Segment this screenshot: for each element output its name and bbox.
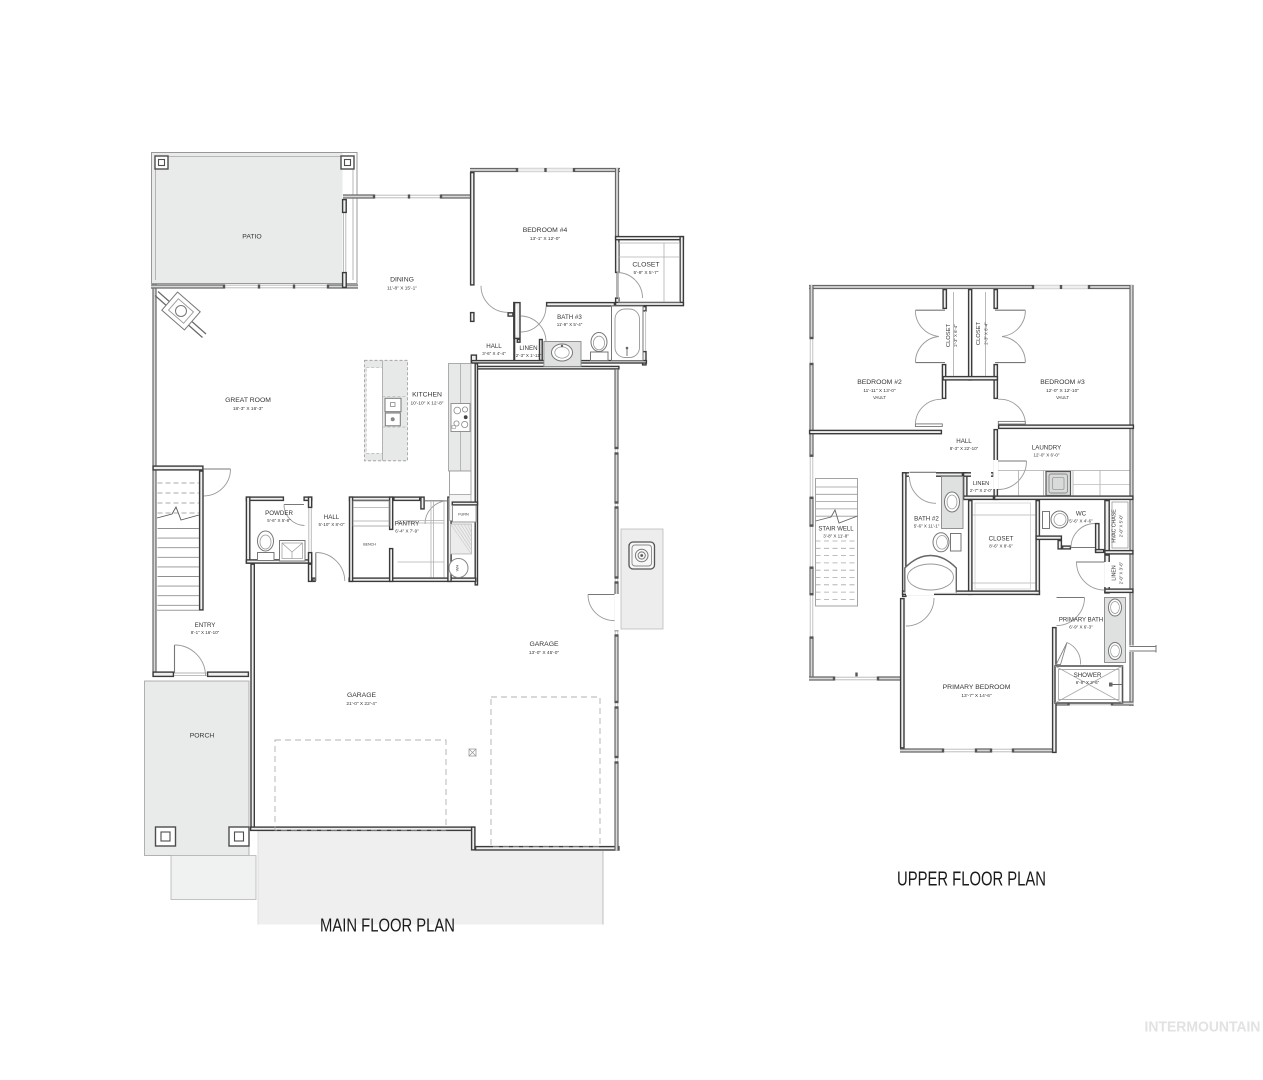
svg-text:13'-7" X 14'-6": 13'-7" X 14'-6"	[961, 693, 992, 699]
svg-text:HALL: HALL	[956, 438, 972, 445]
svg-text:LINEN: LINEN	[519, 345, 537, 352]
svg-text:BEDROOM #3: BEDROOM #3	[1040, 379, 1085, 386]
svg-text:SHOWER: SHOWER	[1074, 672, 1102, 679]
svg-text:5'-6" X 5'-8": 5'-6" X 5'-8"	[267, 518, 291, 523]
svg-text:CLOSET: CLOSET	[976, 321, 982, 345]
svg-text:CLOSET: CLOSET	[946, 323, 952, 347]
svg-text:PANTRY: PANTRY	[395, 521, 420, 528]
svg-text:5'-6" X 11'-1": 5'-6" X 11'-1"	[914, 524, 940, 529]
svg-text:12'-0" X 6'-0": 12'-0" X 6'-0"	[1034, 453, 1060, 458]
svg-text:13'-0" X 45'-0": 13'-0" X 45'-0"	[529, 650, 560, 656]
svg-text:21'-0" X 22'-4": 21'-0" X 22'-4"	[346, 701, 377, 707]
svg-text:FURN: FURN	[458, 513, 469, 517]
svg-text:HALL: HALL	[324, 514, 340, 521]
svg-text:BATH #2: BATH #2	[914, 516, 939, 523]
svg-text:5'-10" X 8'-0": 5'-10" X 8'-0"	[319, 522, 345, 527]
svg-text:11'-8" X 15'-1": 11'-8" X 15'-1"	[387, 286, 417, 292]
svg-text:INTERMOUNTAIN: INTERMOUNTAIN	[1145, 1019, 1261, 1036]
svg-text:CLOSET: CLOSET	[632, 262, 659, 269]
svg-text:BENCH: BENCH	[363, 543, 376, 547]
svg-text:DINING: DINING	[390, 277, 414, 284]
svg-text:WH: WH	[455, 565, 460, 572]
svg-text:CLOSET: CLOSET	[989, 536, 1014, 543]
svg-text:PRIMARY BEDROOM: PRIMARY BEDROOM	[943, 684, 1011, 691]
svg-text:6'-8" X 3'-6": 6'-8" X 3'-6"	[1076, 680, 1100, 685]
svg-text:2'-0" X 3'-6": 2'-0" X 3'-6"	[1119, 561, 1124, 584]
svg-text:BATH #3: BATH #3	[557, 314, 582, 321]
svg-text:KITCHEN: KITCHEN	[412, 392, 442, 399]
svg-text:8'-6" X 8'-6": 8'-6" X 8'-6"	[989, 544, 1013, 549]
svg-text:LINEN: LINEN	[973, 481, 989, 487]
svg-text:2'-3" X 6'-4": 2'-3" X 6'-4"	[984, 322, 989, 345]
svg-text:VAULT: VAULT	[873, 395, 886, 400]
svg-text:PRIMARY BATH: PRIMARY BATH	[1059, 618, 1103, 624]
svg-text:3'-6" X 4'-4": 3'-6" X 4'-4"	[482, 351, 506, 356]
svg-text:STAIR WELL: STAIR WELL	[818, 527, 854, 533]
svg-text:6'-9" X 6'-3": 6'-9" X 6'-3"	[1069, 625, 1093, 630]
svg-text:UPPER FLOOR PLAN: UPPER FLOOR PLAN	[897, 869, 1046, 891]
svg-text:BEDROOM #2: BEDROOM #2	[857, 379, 902, 386]
svg-text:LAUNDRY: LAUNDRY	[1032, 445, 1061, 452]
svg-text:2'-0" X 5'-0": 2'-0" X 5'-0"	[1119, 514, 1124, 537]
svg-text:10'-10" X 12'-8": 10'-10" X 12'-8"	[411, 401, 444, 407]
svg-text:8'-3" X 22'-10": 8'-3" X 22'-10"	[950, 446, 979, 451]
svg-text:PATIO: PATIO	[242, 234, 261, 241]
svg-text:VAULT: VAULT	[1056, 395, 1069, 400]
svg-text:WC: WC	[1076, 511, 1087, 518]
svg-text:HALL: HALL	[486, 343, 502, 350]
svg-text:GREAT ROOM: GREAT ROOM	[225, 397, 271, 404]
svg-text:BEDROOM #4: BEDROOM #4	[523, 227, 568, 234]
svg-text:11'-11" X 13'-0": 11'-11" X 13'-0"	[863, 388, 896, 394]
svg-text:POWDER: POWDER	[265, 510, 293, 517]
svg-text:HVAC CHASE: HVAC CHASE	[1112, 509, 1118, 543]
svg-text:13'-1" X 12'-0": 13'-1" X 12'-0"	[530, 236, 561, 242]
svg-text:2'-3" X 1'-11": 2'-3" X 1'-11"	[516, 353, 542, 358]
svg-text:MAIN FLOOR PLAN: MAIN FLOOR PLAN	[320, 916, 455, 936]
svg-text:3'-8" X 11'-8": 3'-8" X 11'-8"	[823, 534, 849, 539]
svg-text:18'-3" X 16'-3": 18'-3" X 16'-3"	[233, 406, 264, 412]
svg-text:6'-4" X 7'-9": 6'-4" X 7'-9"	[395, 529, 419, 534]
svg-text:11'-9" X 5'-4": 11'-9" X 5'-4"	[557, 322, 583, 327]
svg-text:2'-3" X 6'-4": 2'-3" X 6'-4"	[953, 324, 958, 347]
svg-text:LINEN: LINEN	[1112, 565, 1118, 581]
svg-text:2'-7" X 2'-0": 2'-7" X 2'-0"	[970, 488, 993, 493]
svg-text:5'-6" X 4'-6": 5'-6" X 4'-6"	[1069, 519, 1093, 524]
svg-text:12'-0" X 12'-10": 12'-0" X 12'-10"	[1046, 388, 1079, 394]
svg-text:PORCH: PORCH	[190, 733, 215, 740]
svg-text:5'-9" X 5'-7": 5'-9" X 5'-7"	[634, 270, 659, 276]
svg-text:8'-1" X 16'-10": 8'-1" X 16'-10"	[191, 630, 220, 635]
svg-text:GARAGE: GARAGE	[347, 692, 377, 699]
svg-text:GARAGE: GARAGE	[529, 641, 559, 648]
svg-text:ENTRY: ENTRY	[195, 622, 216, 629]
